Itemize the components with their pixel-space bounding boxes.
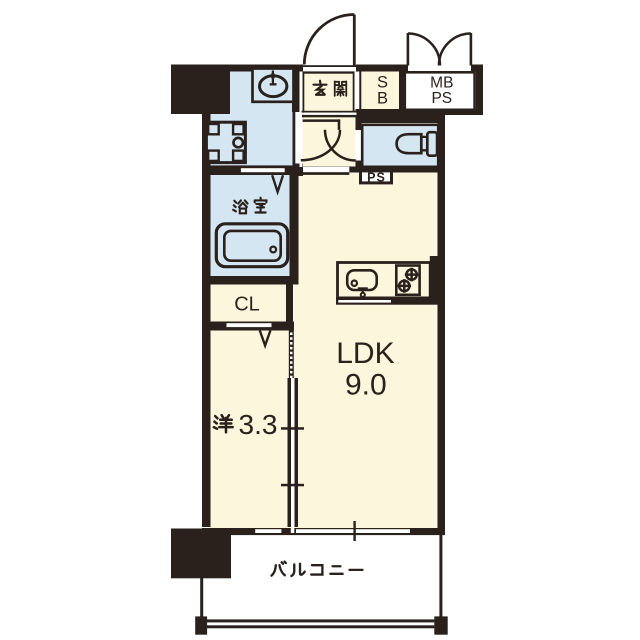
svg-text:3.3: 3.3 [239,409,278,440]
svg-text:MB: MB [430,75,453,92]
svg-text:CL: CL [234,293,260,315]
svg-text:PS: PS [367,170,386,184]
svg-text:9.0: 9.0 [345,369,387,402]
svg-text:B: B [377,90,388,108]
svg-text:LDK: LDK [336,337,394,370]
svg-text:PS: PS [431,90,452,107]
